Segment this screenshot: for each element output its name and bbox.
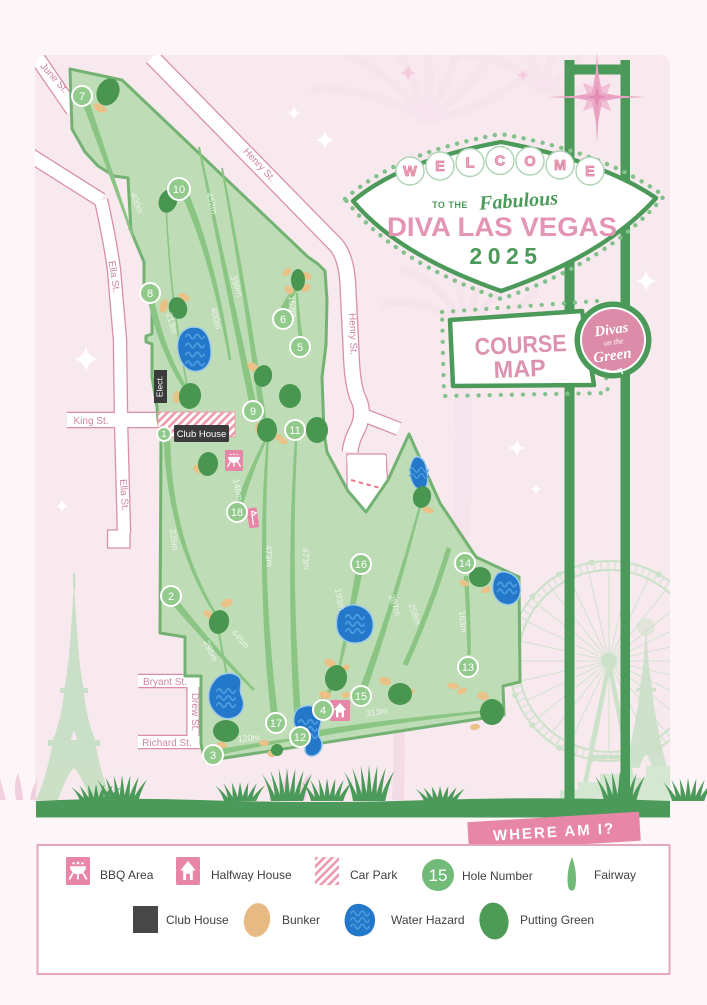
svg-text:9: 9 bbox=[250, 406, 256, 418]
svg-text:Henry St.: Henry St. bbox=[346, 313, 358, 355]
svg-text:10: 10 bbox=[173, 184, 185, 196]
svg-text:5: 5 bbox=[297, 342, 303, 354]
svg-text:473m: 473m bbox=[263, 544, 275, 567]
svg-text:Water Hazard: Water Hazard bbox=[391, 913, 465, 927]
svg-text:15: 15 bbox=[429, 866, 448, 885]
svg-text:473m: 473m bbox=[300, 547, 312, 570]
svg-text:Halfway House: Halfway House bbox=[211, 868, 292, 882]
svg-text:18: 18 bbox=[231, 507, 243, 519]
svg-text:Car Park: Car Park bbox=[350, 868, 398, 882]
svg-text:6: 6 bbox=[280, 314, 286, 326]
svg-text:W: W bbox=[403, 164, 417, 180]
svg-text:Club House: Club House bbox=[166, 913, 229, 927]
svg-text:Ella St.: Ella St. bbox=[117, 479, 130, 511]
svg-text:12: 12 bbox=[294, 732, 306, 744]
svg-text:DIVA LAS VEGAS: DIVA LAS VEGAS bbox=[387, 212, 617, 242]
svg-text:Club House: Club House bbox=[177, 429, 227, 440]
svg-text:120m: 120m bbox=[237, 732, 260, 744]
svg-text:14: 14 bbox=[459, 558, 471, 570]
svg-text:13: 13 bbox=[462, 662, 474, 674]
svg-text:King St.: King St. bbox=[73, 416, 108, 427]
svg-text:16: 16 bbox=[355, 559, 367, 571]
svg-text:Elect.: Elect. bbox=[155, 376, 165, 398]
svg-text:8: 8 bbox=[147, 288, 153, 300]
svg-text:MAP: MAP bbox=[493, 355, 546, 384]
svg-text:Richard St.: Richard St. bbox=[142, 738, 191, 749]
svg-text:Bunker: Bunker bbox=[282, 913, 320, 927]
svg-text:Bryant St.: Bryant St. bbox=[143, 677, 187, 688]
svg-text:Fairway: Fairway bbox=[594, 868, 636, 882]
svg-text:L: L bbox=[466, 156, 475, 172]
svg-text:M: M bbox=[554, 158, 566, 174]
svg-text:E: E bbox=[585, 164, 595, 180]
svg-text:15: 15 bbox=[355, 691, 367, 703]
svg-text:TO THE: TO THE bbox=[432, 200, 468, 210]
svg-text:BBQ Area: BBQ Area bbox=[100, 868, 154, 882]
svg-text:11: 11 bbox=[289, 425, 300, 437]
svg-text:Hole Number: Hole Number bbox=[462, 869, 533, 883]
svg-text:2: 2 bbox=[168, 591, 174, 603]
svg-text:C: C bbox=[495, 154, 506, 170]
svg-text:Drew St.: Drew St. bbox=[189, 693, 200, 731]
svg-text:4: 4 bbox=[320, 705, 326, 717]
svg-text:E: E bbox=[435, 159, 445, 175]
svg-text:Putting Green: Putting Green bbox=[520, 913, 594, 927]
svg-text:17: 17 bbox=[270, 718, 282, 730]
svg-text:3: 3 bbox=[210, 750, 216, 762]
svg-text:1: 1 bbox=[161, 429, 166, 439]
svg-text:O: O bbox=[524, 154, 535, 170]
svg-text:7: 7 bbox=[79, 91, 85, 103]
svg-text:2025: 2025 bbox=[469, 243, 542, 269]
